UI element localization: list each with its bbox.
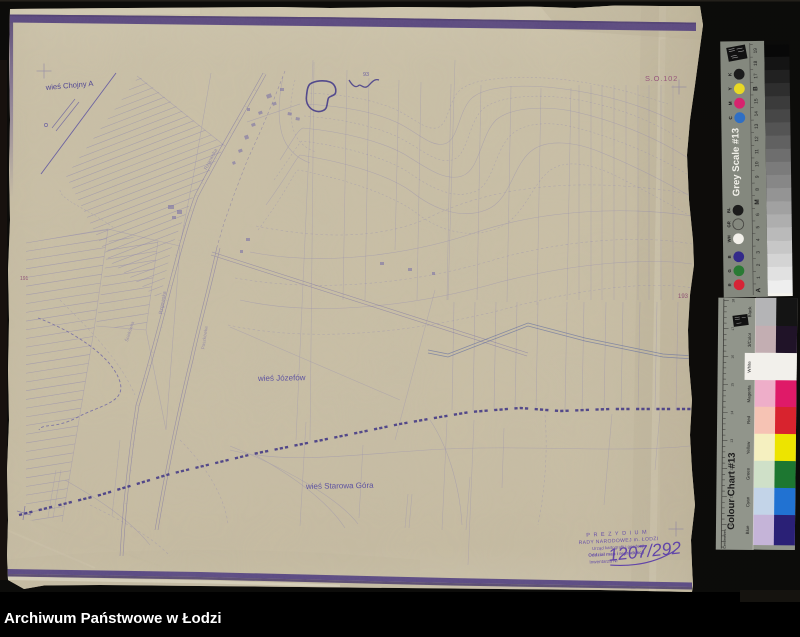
svg-text:15: 15 (753, 98, 759, 104)
svg-text:17: 17 (753, 73, 759, 79)
svg-text:3: 3 (756, 251, 762, 254)
svg-text:Green: Green (745, 467, 750, 480)
svg-text:Red: Red (746, 415, 751, 424)
svg-text:Colour Chart #13: Colour Chart #13 (726, 452, 738, 529)
svg-text:WH: WH (727, 235, 732, 242)
svg-text:14: 14 (754, 111, 760, 117)
svg-text:Yellow: Yellow (746, 441, 751, 454)
svg-text:White: White (747, 361, 752, 373)
svg-text:R: R (727, 283, 732, 286)
svg-text:8: 8 (755, 188, 761, 191)
svg-text:18: 18 (753, 60, 759, 66)
svg-text:Blue: Blue (745, 525, 750, 534)
svg-text:B: B (727, 255, 732, 258)
svg-text:Cyan: Cyan (745, 496, 750, 507)
svg-text:B: B (752, 86, 759, 91)
svg-text:G: G (727, 269, 732, 272)
svg-text:12: 12 (754, 136, 760, 142)
svg-text:10: 10 (754, 161, 760, 167)
svg-text:M: M (754, 199, 761, 204)
svg-text:Grey Scale #13: Grey Scale #13 (730, 128, 742, 196)
svg-text:A: A (755, 287, 762, 292)
svg-text:Centimetres: Centimetres (723, 529, 727, 549)
svg-text:15: 15 (730, 383, 734, 387)
svg-text:6: 6 (755, 213, 761, 216)
svg-text:13: 13 (754, 123, 760, 129)
svg-text:11: 11 (754, 149, 760, 154)
svg-text:14: 14 (730, 411, 734, 415)
svg-text:M: M (728, 101, 733, 105)
svg-text:Magenta: Magenta (746, 385, 751, 403)
svg-text:16: 16 (731, 355, 735, 359)
svg-text:GR: GR (726, 221, 731, 227)
svg-text:4: 4 (755, 238, 761, 241)
svg-text:19: 19 (753, 48, 759, 54)
svg-text:Black: Black (747, 306, 752, 318)
svg-text:1: 1 (756, 276, 762, 279)
svg-text:5: 5 (755, 225, 761, 228)
svg-text:2: 2 (756, 263, 762, 266)
svg-text:BL: BL (726, 207, 731, 213)
svg-text:9: 9 (755, 175, 761, 178)
svg-text:3/Color: 3/Color (747, 332, 752, 347)
svg-text:Y: Y (728, 87, 733, 90)
svg-text:17: 17 (731, 327, 735, 331)
svg-text:12: 12 (730, 467, 734, 471)
svg-text:13: 13 (730, 439, 734, 443)
svg-text:18: 18 (731, 299, 735, 303)
svg-text:11: 11 (729, 495, 733, 499)
svg-text:10: 10 (729, 523, 733, 527)
svg-text:Archiwum Państwowe w Łodzi: Archiwum Państwowe w Łodzi (4, 610, 222, 627)
